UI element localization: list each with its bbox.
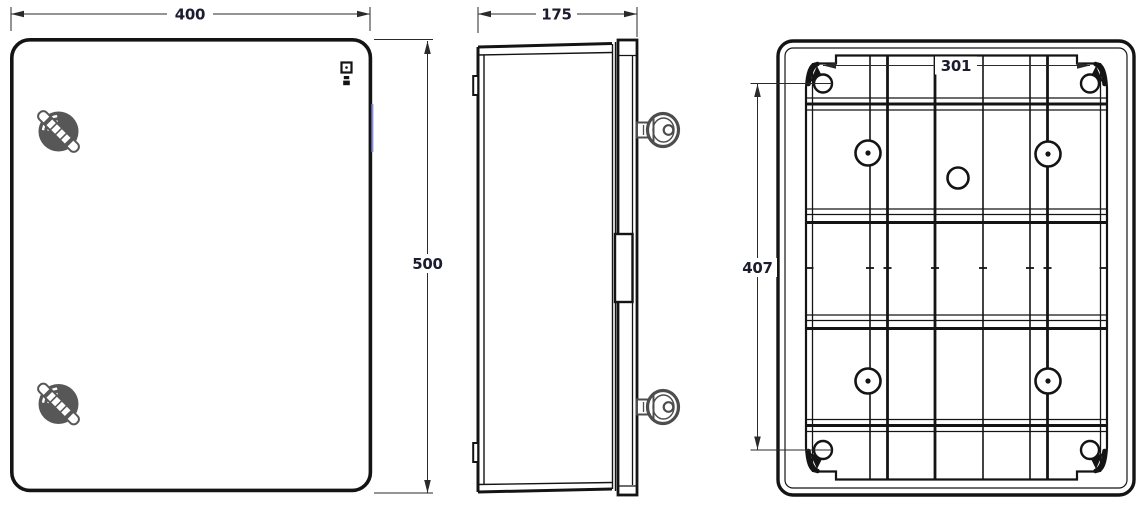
arrowhead-down [424,480,431,493]
hinge-tab [615,234,633,302]
arrowhead-left [478,11,491,18]
arrowhead-up [424,41,431,54]
side-body [478,42,616,492]
center-hole [948,168,969,189]
front-view: 400 500 [0,0,460,513]
arrowhead-left [11,11,24,18]
wall-bracket-stub-top [473,76,478,95]
dim-hole-spacing-h-label: 301 [941,57,971,75]
arrowhead-right [357,11,370,18]
technical-drawing-canvas: 400 500 [0,0,1146,513]
enclosure-door-panel [12,40,371,491]
arrowhead-up [754,84,761,97]
mounting-hole-top-right [1081,75,1099,93]
dim-front-height-label: 500 [412,255,442,273]
side-view: 175 [460,0,690,513]
dim-front-width-label: 400 [175,6,205,24]
door-key-top-icon [637,114,679,147]
screw-boss-top-right [1036,142,1061,167]
screw-boss-top-left [856,141,881,166]
door-key-bottom-icon [637,391,679,424]
dim-hole-spacing-v-label: 407 [742,259,772,277]
wall-bracket-stub-bottom [473,443,478,462]
dim-side-depth-label: 175 [541,6,571,24]
screw-boss-bottom-left [856,369,881,394]
arrowhead-down [754,437,761,450]
arrowhead-right [624,11,637,18]
screw-boss-bottom-right [1036,369,1061,394]
mounting-hole-bottom-right [1081,441,1099,459]
back-interior-view: 301 407 [690,0,1146,513]
